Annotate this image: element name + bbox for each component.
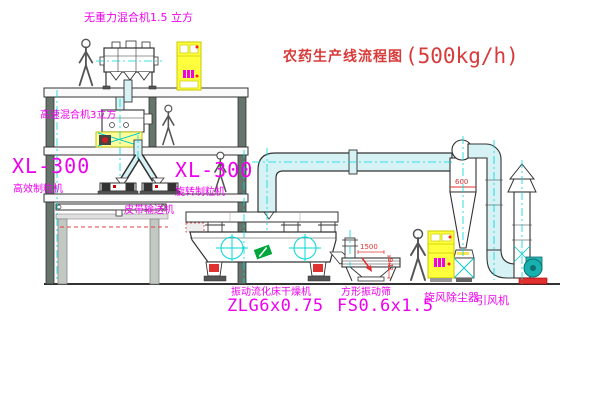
cad-flow-diagram: 农药生产线流程图 (500kg/h) 无重力混合机1.5 立方 高速混合机3立方… xyxy=(0,0,600,403)
label-granulator-left-model: XL-300 xyxy=(12,156,90,176)
fluid-bed-dryer xyxy=(186,212,338,281)
dim-screen-length: 1500 xyxy=(360,244,378,251)
label-cyclone: 旋风除尘器 xyxy=(424,292,479,303)
person-figure-4 xyxy=(411,230,425,281)
label-belt-conveyor: 皮带输送机 xyxy=(124,206,174,216)
label-granulator-left-name: 高效制粒机 xyxy=(13,185,63,195)
label-high-speed-mixer: 高速混合机3立方 xyxy=(40,111,116,121)
person-figure-2 xyxy=(163,105,174,144)
label-screen-model: FS0.6x1.5 xyxy=(337,298,434,315)
label-zero-gravity-mixer: 无重力混合机1.5 立方 xyxy=(84,12,193,23)
granulator-right xyxy=(140,178,180,194)
exhaust-duct xyxy=(258,150,452,212)
high-speed-mixer xyxy=(96,97,152,147)
label-granulator-right-name: 旋转制粒机 xyxy=(175,188,225,198)
label-fan: 引风机 xyxy=(476,295,509,306)
control-cabinet-1 xyxy=(177,42,201,90)
granulator-left xyxy=(98,178,138,194)
diagram-title: 农药生产线流程图 (500kg/h) xyxy=(283,44,519,68)
title-capacity: (500kg/h) xyxy=(405,44,519,68)
label-dryer-model: ZLG6x0.75 xyxy=(227,298,324,315)
person-figure-1 xyxy=(80,39,93,85)
dim-cyclone-outlet: 600 xyxy=(455,179,468,186)
dim-screen-height: 941 xyxy=(386,258,393,271)
label-granulator-right-model: XL-300 xyxy=(175,160,253,180)
control-cabinet-2 xyxy=(428,231,454,282)
title-text: 农药生产线流程图 xyxy=(283,46,403,66)
